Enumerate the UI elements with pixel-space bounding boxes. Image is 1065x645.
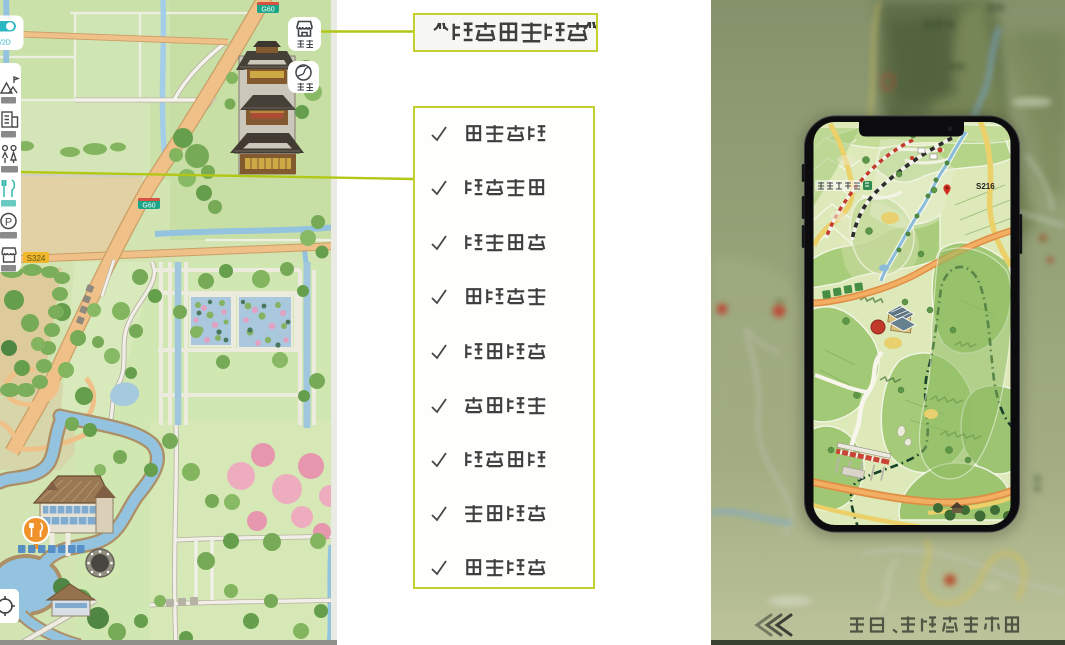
svg-text:3D/2D: 3D/2D bbox=[0, 40, 11, 47]
svg-text:P: P bbox=[5, 217, 12, 229]
svg-text:S216: S216 bbox=[976, 182, 995, 191]
